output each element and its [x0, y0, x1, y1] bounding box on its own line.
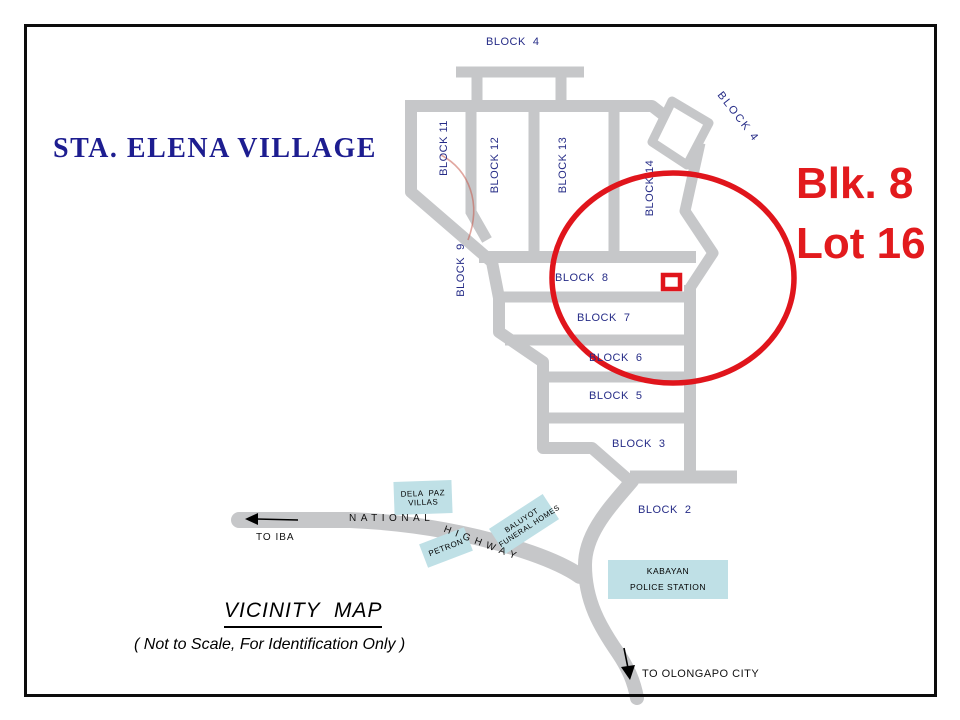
- vicinity-map-page: STA. ELENA VILLAGE Blk. 8 Lot 16 BLOCK 4…: [0, 0, 960, 720]
- landmark-kabayan-line1: KABAYAN: [608, 564, 728, 579]
- label-block-12: BLOCK 12: [489, 130, 501, 200]
- label-block-7: BLOCK 7: [577, 312, 631, 324]
- label-block-4-top: BLOCK 4: [486, 36, 540, 48]
- highlight-block-line: Blk. 8: [796, 154, 926, 214]
- label-block-14: BLOCK 14: [644, 153, 656, 223]
- landmark-kabayan-police-station: KABAYAN POLICE STATION: [608, 560, 728, 599]
- label-national: NATIONAL: [349, 513, 434, 524]
- label-block-2: BLOCK 2: [638, 504, 692, 516]
- not-to-scale-note: ( Not to Scale, For Identification Only …: [134, 636, 405, 654]
- label-to-iba: TO IBA: [256, 532, 295, 543]
- highlight-callout: Blk. 8 Lot 16: [796, 154, 926, 274]
- label-block-5: BLOCK 5: [589, 390, 643, 402]
- label-block-6: BLOCK 6: [589, 352, 643, 364]
- landmark-dela-paz-villas: DELA PAZ VILLAS: [393, 480, 452, 515]
- landmark-kabayan-line2: POLICE STATION: [608, 580, 728, 595]
- landmark-dela-paz-line2: VILLAS: [394, 496, 452, 507]
- vicinity-map-title: VICINITY MAP: [224, 599, 382, 628]
- label-block-9: BLOCK 9: [455, 235, 467, 305]
- label-block-8: BLOCK 8: [555, 272, 609, 284]
- highlight-lot-line: Lot 16: [796, 214, 926, 274]
- label-to-olongapo-city: TO OLONGAPO CITY: [642, 668, 759, 680]
- label-block-3: BLOCK 3: [612, 438, 666, 450]
- label-block-11: BLOCK 11: [438, 113, 450, 183]
- page-title: STA. ELENA VILLAGE: [53, 133, 377, 165]
- page-border: [24, 24, 937, 697]
- label-block-13: BLOCK 13: [557, 130, 569, 200]
